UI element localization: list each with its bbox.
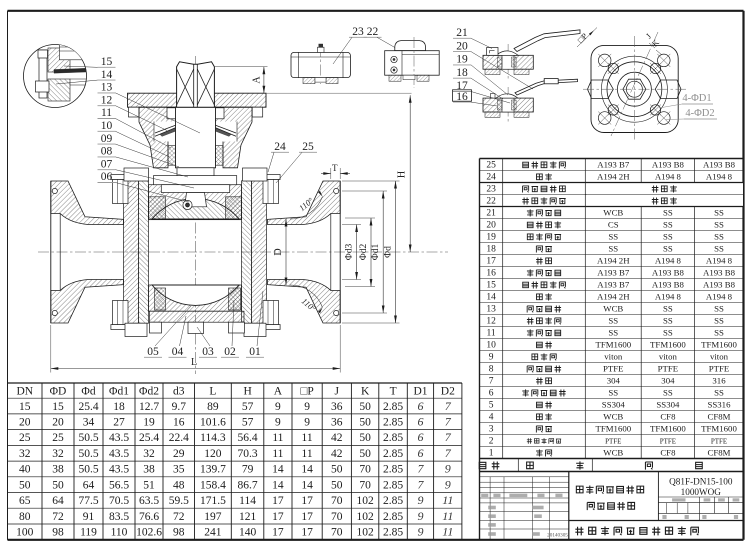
svg-text:4: 4 (489, 413, 494, 423)
svg-text:T: T (390, 386, 397, 398)
svg-text:36: 36 (331, 417, 343, 429)
svg-text:32: 32 (19, 448, 31, 460)
svg-text:PTFE: PTFE (605, 438, 621, 446)
svg-text:36: 36 (331, 401, 343, 413)
svg-text:A194 2H: A194 2H (597, 172, 630, 182)
svg-text:17: 17 (272, 527, 284, 539)
svg-text:WCB: WCB (603, 412, 623, 422)
svg-text:102: 102 (356, 495, 374, 507)
svg-text:158.4: 158.4 (200, 479, 226, 491)
svg-text:304: 304 (607, 376, 621, 386)
svg-text:PTFE: PTFE (658, 364, 679, 374)
svg-text:77.5: 77.5 (78, 495, 98, 507)
svg-text:114.3: 114.3 (200, 432, 226, 444)
svg-text:WCB: WCB (603, 208, 623, 218)
svg-text:CF8M: CF8M (708, 448, 731, 458)
svg-text:11: 11 (302, 432, 313, 444)
svg-text:25: 25 (302, 141, 314, 153)
svg-text:20: 20 (52, 417, 64, 429)
svg-text:19: 19 (486, 233, 496, 243)
svg-text:A193 B7: A193 B7 (597, 280, 630, 290)
svg-text:114: 114 (239, 495, 256, 507)
svg-text:20140305: 20140305 (547, 532, 568, 538)
svg-text:11: 11 (302, 448, 313, 460)
svg-text:Φd: Φd (384, 246, 394, 258)
svg-text:SS: SS (714, 208, 724, 218)
svg-text:18: 18 (486, 245, 496, 255)
svg-text:50: 50 (359, 432, 371, 444)
svg-text:1: 1 (489, 449, 494, 459)
svg-text:4-ΦD1: 4-ΦD1 (682, 93, 711, 104)
svg-text:2.85: 2.85 (383, 527, 403, 539)
svg-text:2.85: 2.85 (383, 448, 403, 460)
svg-text:2: 2 (489, 437, 494, 447)
svg-text:59.5: 59.5 (169, 495, 189, 507)
svg-text:A193 B7: A193 B7 (597, 160, 630, 170)
svg-text:24: 24 (486, 173, 496, 183)
svg-text:SS: SS (608, 388, 618, 398)
svg-text:WCB: WCB (603, 304, 623, 314)
svg-text:SS: SS (714, 316, 724, 326)
svg-text:89: 89 (207, 401, 219, 413)
svg-text:07: 07 (101, 158, 113, 170)
svg-text:34: 34 (83, 417, 95, 429)
svg-text:38: 38 (52, 464, 64, 476)
svg-text:CF8: CF8 (660, 412, 676, 422)
svg-text:T: T (332, 163, 338, 173)
svg-text:38: 38 (143, 464, 155, 476)
svg-text:11: 11 (101, 107, 112, 119)
svg-text:17: 17 (301, 527, 313, 539)
svg-text:70: 70 (331, 495, 343, 507)
svg-text:TFM1600: TFM1600 (701, 340, 737, 350)
svg-text:140: 140 (239, 527, 257, 539)
svg-text:SS: SS (663, 388, 673, 398)
svg-text:TFM1600: TFM1600 (595, 424, 631, 434)
svg-text:12: 12 (101, 94, 113, 106)
svg-text:15: 15 (486, 281, 496, 291)
svg-text:25.4: 25.4 (139, 432, 159, 444)
svg-text:43.5: 43.5 (109, 432, 129, 444)
svg-text:6: 6 (418, 430, 424, 444)
svg-text:15: 15 (101, 56, 113, 68)
svg-text:TFM1600: TFM1600 (701, 424, 737, 434)
svg-text:Φd2: Φd2 (359, 244, 369, 261)
svg-text:SS: SS (714, 220, 724, 230)
svg-text:9: 9 (418, 493, 424, 507)
svg-text:SS: SS (608, 232, 618, 242)
svg-text:A194 8: A194 8 (655, 256, 682, 266)
svg-text:SS: SS (714, 232, 724, 242)
svg-text:11: 11 (487, 329, 496, 339)
svg-text:8: 8 (489, 365, 494, 375)
svg-text:9: 9 (304, 401, 310, 413)
svg-text:56.5: 56.5 (109, 479, 129, 491)
svg-text:9: 9 (418, 525, 424, 539)
svg-text:64: 64 (83, 479, 95, 491)
svg-text:171.5: 171.5 (200, 495, 226, 507)
svg-text:23: 23 (486, 185, 496, 195)
svg-text:48: 48 (173, 479, 185, 491)
svg-text:9.7: 9.7 (172, 401, 187, 413)
svg-text:6: 6 (418, 399, 424, 413)
svg-text:76.6: 76.6 (139, 511, 159, 523)
svg-text:102: 102 (356, 527, 374, 539)
svg-text:316: 316 (712, 376, 726, 386)
svg-text:09: 09 (101, 133, 113, 145)
svg-text:Φd: Φd (81, 386, 95, 398)
svg-text:7: 7 (418, 462, 425, 476)
svg-text:2.85: 2.85 (383, 417, 403, 429)
svg-text:05: 05 (147, 346, 159, 358)
svg-text:2.85: 2.85 (383, 401, 403, 413)
svg-text:□P: □P (300, 386, 313, 398)
svg-text:11: 11 (272, 448, 283, 460)
svg-text:23: 23 (352, 26, 364, 38)
svg-text:SS: SS (663, 304, 673, 314)
svg-text:14: 14 (272, 464, 284, 476)
svg-text:11: 11 (442, 509, 453, 523)
svg-text:D1: D1 (413, 386, 427, 398)
svg-text:17: 17 (272, 511, 284, 523)
svg-text:A: A (252, 76, 263, 84)
svg-text:SS: SS (608, 244, 618, 254)
svg-text:13: 13 (486, 305, 496, 315)
svg-text:18: 18 (113, 401, 125, 413)
svg-text:27: 27 (113, 417, 125, 429)
svg-text:H: H (243, 386, 251, 398)
svg-text:6: 6 (418, 446, 424, 460)
svg-text:2.85: 2.85 (383, 511, 403, 523)
svg-text:14: 14 (301, 464, 313, 476)
svg-text:SS: SS (663, 220, 673, 230)
svg-text:2.85: 2.85 (383, 464, 403, 476)
svg-text:50: 50 (19, 479, 31, 491)
svg-text:SS: SS (663, 208, 673, 218)
svg-text:TFM1600: TFM1600 (595, 340, 631, 350)
svg-text:SS: SS (714, 328, 724, 338)
svg-text:7: 7 (445, 446, 452, 460)
svg-text:03: 03 (202, 346, 214, 358)
svg-text:A193 B8: A193 B8 (652, 160, 685, 170)
svg-text:2.85: 2.85 (383, 479, 403, 491)
svg-text:43.5: 43.5 (109, 464, 129, 476)
svg-text:H: H (396, 171, 407, 178)
svg-text:J: J (335, 386, 340, 398)
svg-text:70: 70 (331, 511, 343, 523)
svg-text:197: 197 (204, 511, 222, 523)
svg-text:SS: SS (714, 388, 724, 398)
svg-text:Φd1: Φd1 (109, 386, 129, 398)
svg-text:70.5: 70.5 (109, 495, 129, 507)
svg-text:14: 14 (486, 293, 496, 303)
svg-text:79: 79 (242, 464, 254, 476)
svg-text:50: 50 (52, 479, 64, 491)
svg-text:51: 51 (143, 479, 155, 491)
svg-text:18: 18 (456, 67, 468, 79)
svg-text:K: K (361, 386, 370, 398)
svg-text:63.5: 63.5 (139, 495, 159, 507)
svg-text:A194 8: A194 8 (655, 172, 682, 182)
svg-text:50: 50 (331, 464, 343, 476)
svg-text:A194 8: A194 8 (655, 292, 682, 302)
svg-text:70: 70 (331, 527, 343, 539)
svg-text:L: L (191, 357, 197, 368)
svg-text:7: 7 (489, 377, 494, 387)
svg-text:101.6: 101.6 (200, 417, 226, 429)
svg-text:10: 10 (486, 341, 496, 351)
svg-text:PTFE: PTFE (709, 364, 730, 374)
svg-text:Q81F-DN15-100: Q81F-DN15-100 (669, 476, 733, 486)
svg-text:50: 50 (359, 417, 371, 429)
svg-text:11: 11 (272, 432, 283, 444)
svg-text:Φd2: Φd2 (139, 386, 159, 398)
svg-text:A194 8: A194 8 (706, 292, 733, 302)
svg-text:7: 7 (445, 415, 452, 429)
svg-text:SS: SS (663, 328, 673, 338)
svg-text:02: 02 (224, 346, 236, 358)
svg-text:42: 42 (331, 448, 343, 460)
svg-text:SS: SS (714, 244, 724, 254)
svg-text:50: 50 (359, 448, 371, 460)
svg-text:120: 120 (204, 448, 222, 460)
svg-text:Φd1: Φd1 (371, 244, 381, 261)
svg-text:A193 B7: A193 B7 (597, 268, 630, 278)
svg-text:PTFE: PTFE (711, 438, 727, 446)
svg-text:9: 9 (445, 462, 451, 476)
svg-text:17: 17 (486, 257, 496, 267)
svg-text:139.7: 139.7 (200, 464, 226, 476)
svg-text:24: 24 (274, 141, 286, 153)
svg-text:80: 80 (19, 511, 31, 523)
svg-text:9: 9 (275, 401, 281, 413)
svg-text:241: 241 (204, 527, 222, 539)
svg-text:65: 65 (19, 495, 31, 507)
svg-text:PTFE: PTFE (660, 438, 676, 446)
svg-text:100: 100 (16, 527, 34, 539)
svg-text:TFM1600: TFM1600 (650, 424, 686, 434)
svg-text:17: 17 (272, 495, 284, 507)
svg-text:A193 B8: A193 B8 (703, 268, 736, 278)
svg-text:25.4: 25.4 (78, 401, 98, 413)
svg-text:04: 04 (172, 346, 184, 358)
svg-text:SS304: SS304 (656, 400, 680, 410)
svg-text:A194 2H: A194 2H (597, 292, 630, 302)
svg-text:70: 70 (359, 464, 371, 476)
svg-text:19: 19 (456, 54, 468, 66)
svg-text:CF8M: CF8M (708, 412, 731, 422)
svg-text:22.4: 22.4 (169, 432, 189, 444)
svg-text:D: D (273, 248, 284, 255)
svg-text:43.5: 43.5 (109, 448, 129, 460)
svg-text:102: 102 (356, 511, 374, 523)
svg-text:PTFE: PTFE (603, 364, 624, 374)
svg-text:16: 16 (486, 269, 496, 279)
svg-text:98: 98 (173, 527, 185, 539)
svg-text:01: 01 (249, 346, 261, 358)
svg-text:9: 9 (275, 417, 281, 429)
svg-text:6: 6 (489, 389, 494, 399)
svg-text:4-ΦD2: 4-ΦD2 (685, 108, 714, 119)
svg-text:304: 304 (661, 376, 675, 386)
svg-text:50.5: 50.5 (78, 464, 98, 476)
svg-text:64: 64 (52, 495, 64, 507)
svg-text:ΦD: ΦD (50, 386, 67, 398)
svg-text:viton: viton (710, 352, 729, 362)
svg-text:SS: SS (608, 328, 618, 338)
svg-text:86.7: 86.7 (238, 479, 258, 491)
svg-text:10: 10 (101, 120, 113, 132)
svg-text:9: 9 (489, 353, 494, 363)
svg-text:A: A (274, 386, 283, 398)
svg-text:06: 06 (101, 171, 113, 183)
svg-text:CF8: CF8 (660, 448, 676, 458)
svg-text:72: 72 (173, 511, 185, 523)
svg-text:32: 32 (143, 448, 155, 460)
svg-text:70: 70 (359, 479, 371, 491)
svg-text:A194 8: A194 8 (706, 256, 733, 266)
svg-text:SS: SS (663, 232, 673, 242)
svg-text:14: 14 (101, 69, 113, 81)
svg-text:15: 15 (19, 401, 31, 413)
svg-text:11: 11 (442, 493, 453, 507)
svg-text:22: 22 (486, 197, 496, 207)
svg-text:19: 19 (143, 417, 155, 429)
svg-text:57: 57 (242, 417, 254, 429)
svg-text:70.3: 70.3 (238, 448, 258, 460)
svg-text:35: 35 (173, 464, 185, 476)
svg-text:9: 9 (445, 477, 451, 491)
svg-text:3: 3 (489, 425, 494, 435)
svg-text:72: 72 (52, 511, 64, 523)
svg-text:TFM1600: TFM1600 (650, 340, 686, 350)
svg-text:29: 29 (173, 448, 185, 460)
svg-text:14: 14 (301, 479, 313, 491)
svg-text:7: 7 (418, 477, 425, 491)
svg-text:9: 9 (304, 417, 310, 429)
svg-text:13: 13 (101, 82, 113, 94)
svg-text:50: 50 (331, 479, 343, 491)
svg-text:42: 42 (331, 432, 343, 444)
svg-text:17: 17 (301, 495, 313, 507)
svg-text:20: 20 (486, 221, 496, 231)
svg-text:12: 12 (486, 317, 496, 327)
svg-text:A193 B8: A193 B8 (652, 268, 685, 278)
svg-text:A193 B8: A193 B8 (652, 280, 685, 290)
svg-text:12.7: 12.7 (139, 401, 159, 413)
svg-text:50: 50 (359, 401, 371, 413)
svg-text:08: 08 (101, 146, 113, 158)
svg-text:CS: CS (608, 220, 619, 230)
svg-text:25: 25 (19, 432, 31, 444)
svg-text:20: 20 (456, 40, 468, 52)
svg-text:16: 16 (173, 417, 185, 429)
svg-text:5: 5 (489, 401, 494, 411)
svg-text:A193 B8: A193 B8 (703, 280, 736, 290)
svg-text:A194 8: A194 8 (706, 172, 733, 182)
svg-text:57: 57 (242, 401, 254, 413)
svg-text:17: 17 (301, 511, 313, 523)
svg-text:d3: d3 (173, 386, 185, 398)
svg-text:25: 25 (486, 161, 496, 171)
svg-text:119: 119 (80, 527, 97, 539)
svg-text:7: 7 (445, 399, 452, 413)
svg-text:9: 9 (418, 509, 424, 523)
svg-text:Φd3: Φd3 (345, 244, 355, 261)
svg-text:D2: D2 (441, 386, 455, 398)
svg-text:50.5: 50.5 (78, 448, 98, 460)
svg-text:WCB: WCB (603, 448, 623, 458)
svg-text:102.6: 102.6 (136, 527, 162, 539)
svg-text:2.85: 2.85 (383, 495, 403, 507)
svg-text:14: 14 (272, 479, 284, 491)
svg-text:21: 21 (486, 209, 496, 219)
svg-text:121: 121 (239, 511, 257, 523)
svg-text:L: L (209, 386, 216, 398)
svg-text:viton: viton (659, 352, 678, 362)
svg-text:15: 15 (52, 401, 64, 413)
svg-text:SS: SS (608, 316, 618, 326)
svg-text:20: 20 (19, 417, 31, 429)
svg-text:22: 22 (367, 26, 379, 38)
svg-text:SS: SS (663, 316, 673, 326)
svg-text:DN: DN (16, 386, 33, 398)
svg-text:SS304: SS304 (602, 400, 626, 410)
svg-text:A194 2H: A194 2H (597, 256, 630, 266)
svg-text:56.4: 56.4 (238, 432, 258, 444)
svg-text:40: 40 (19, 464, 31, 476)
svg-text:1000WOG: 1000WOG (681, 487, 722, 497)
svg-text:11: 11 (442, 525, 453, 539)
svg-text:7: 7 (445, 430, 452, 444)
svg-text:SS: SS (714, 304, 724, 314)
svg-text:50.5: 50.5 (78, 432, 98, 444)
svg-text:SS316: SS316 (708, 400, 732, 410)
svg-text:21: 21 (456, 27, 468, 39)
svg-text:83.5: 83.5 (109, 511, 129, 523)
svg-text:viton: viton (604, 352, 623, 362)
svg-text:110: 110 (111, 527, 128, 539)
svg-text:32: 32 (52, 448, 64, 460)
svg-text:6: 6 (418, 415, 424, 429)
svg-text:2.85: 2.85 (383, 432, 403, 444)
svg-text:91: 91 (83, 511, 95, 523)
svg-text:98: 98 (52, 527, 64, 539)
svg-text:A193 B8: A193 B8 (703, 160, 736, 170)
svg-text:SS: SS (663, 244, 673, 254)
svg-text:25: 25 (52, 432, 64, 444)
